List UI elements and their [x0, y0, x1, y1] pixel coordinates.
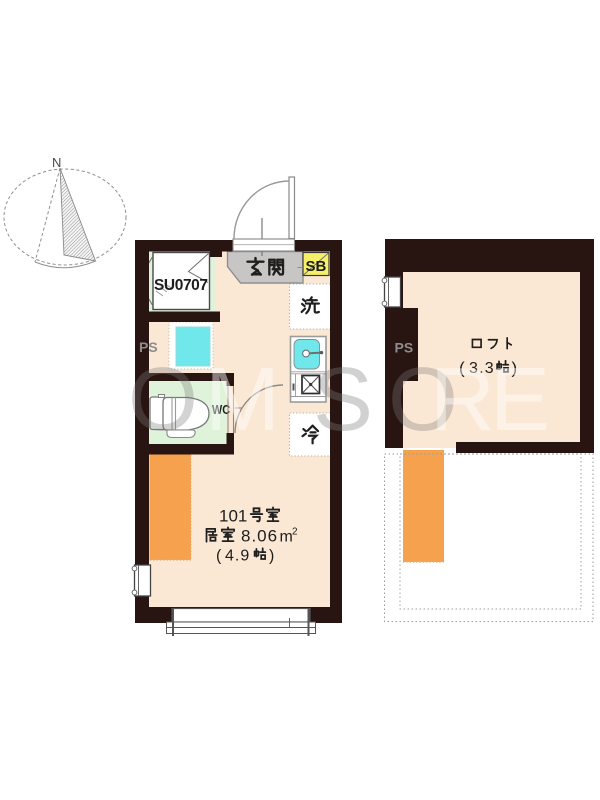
svg-text:M: M [205, 350, 280, 450]
svg-text:R: R [430, 350, 495, 450]
svg-text:2: 2 [292, 527, 298, 538]
svg-text:101: 101 [219, 507, 247, 526]
svg-text:m: m [280, 529, 293, 546]
svg-text:SU0707: SU0707 [154, 277, 208, 294]
svg-text:8.06: 8.06 [241, 527, 278, 546]
svg-text:4.9: 4.9 [225, 548, 250, 565]
svg-text:SB: SB [306, 258, 327, 275]
svg-text:S: S [313, 350, 373, 450]
svg-text:N: N [52, 155, 61, 170]
svg-text:E: E [490, 350, 550, 450]
svg-text:O: O [128, 350, 198, 450]
svg-text:(: ( [216, 548, 222, 565]
svg-text:): ) [269, 548, 274, 565]
